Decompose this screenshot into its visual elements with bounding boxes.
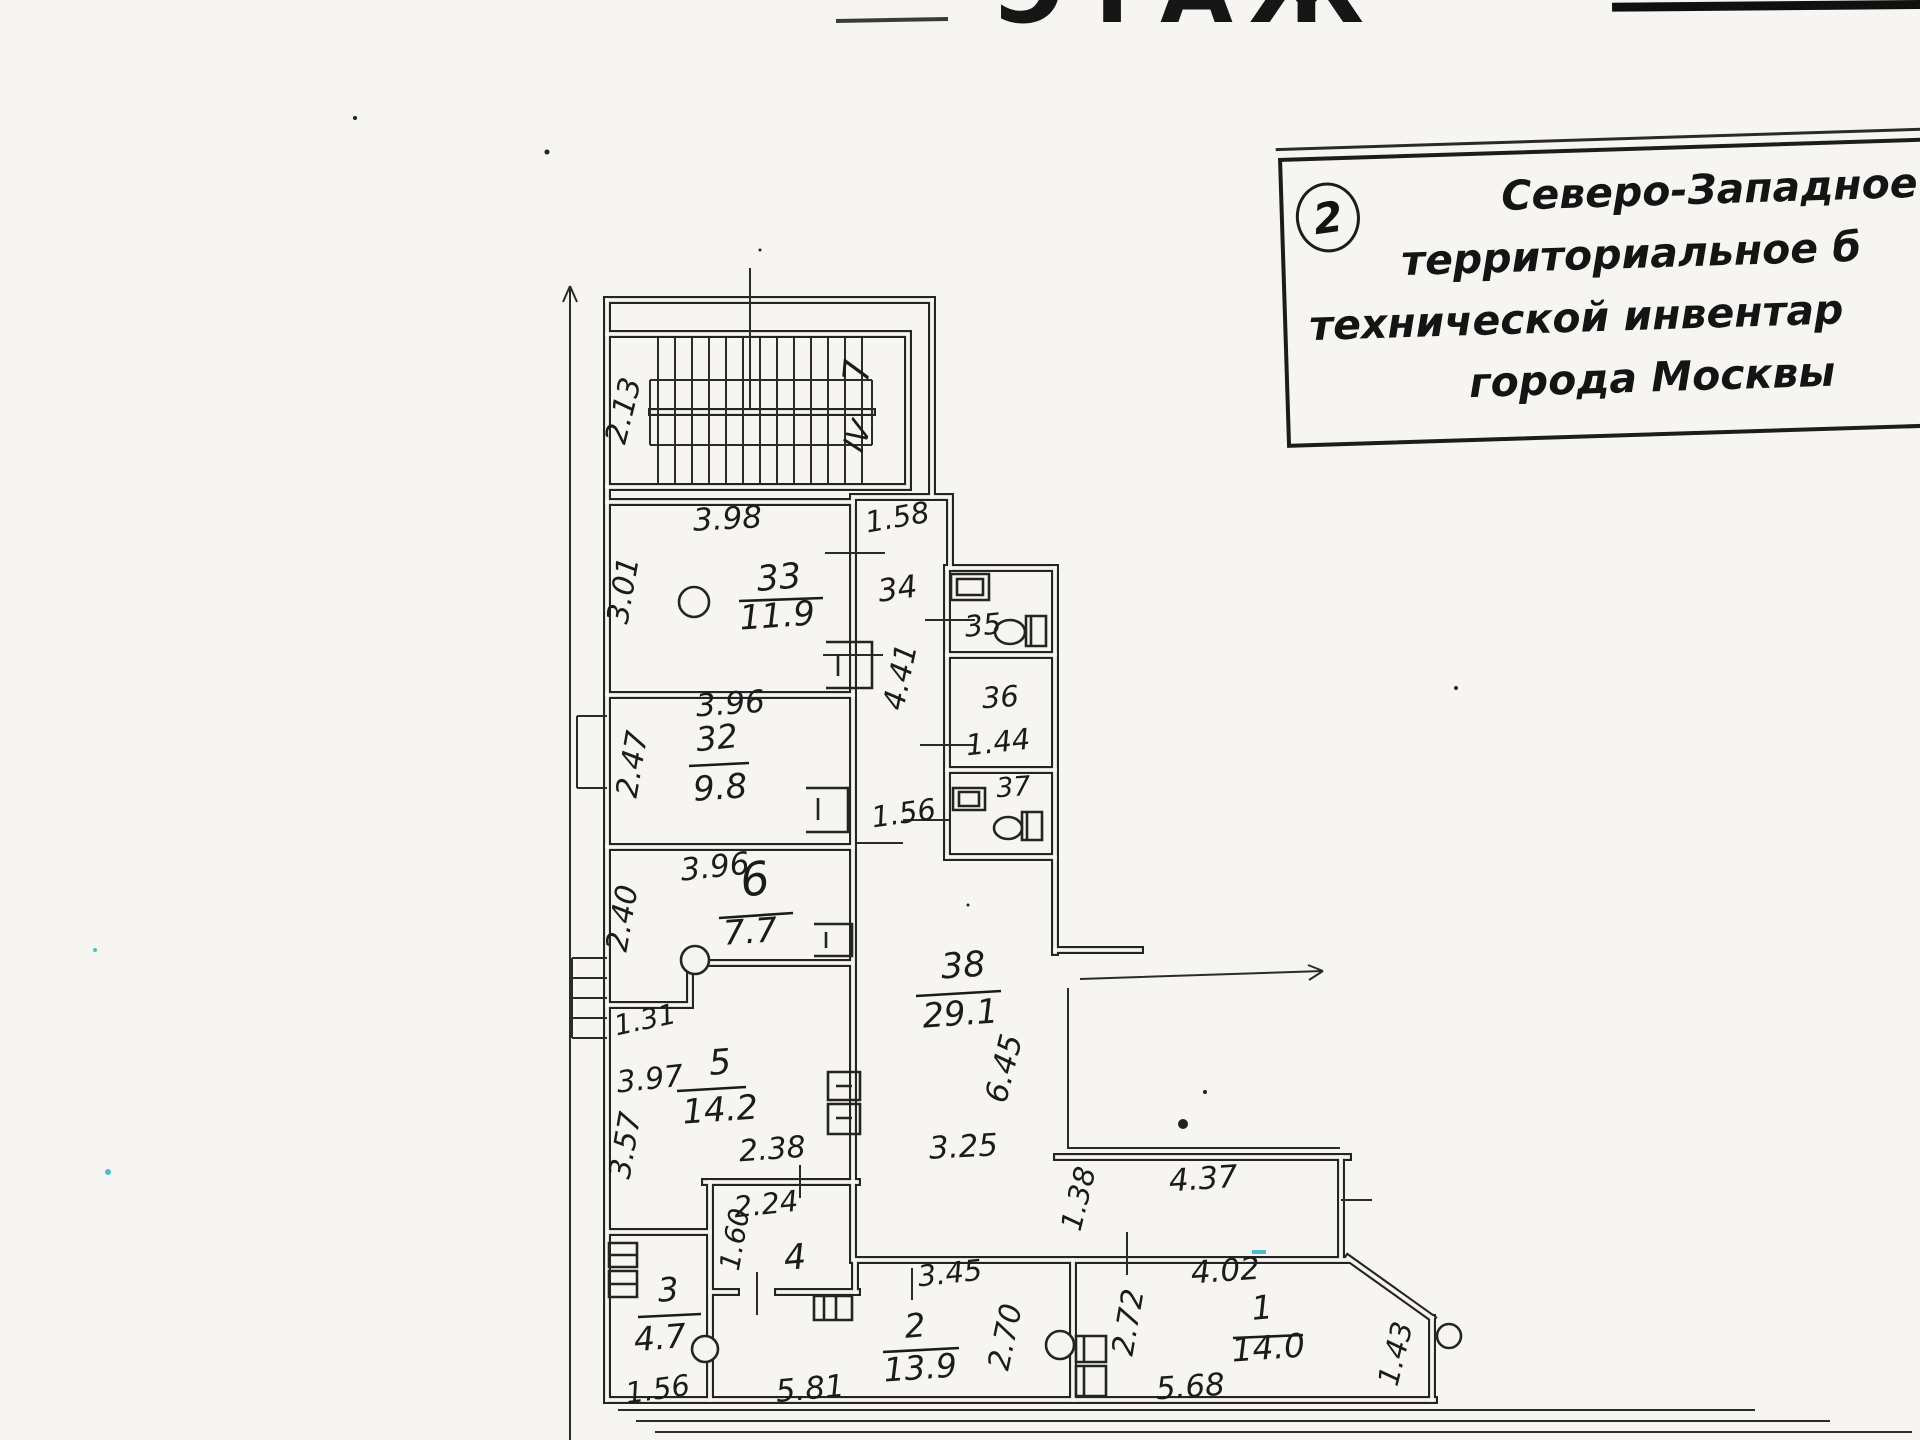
radiator-room1 bbox=[1076, 1336, 1106, 1396]
column-room6 bbox=[681, 946, 709, 974]
toilet-room37 bbox=[994, 817, 1022, 839]
plan-label-room38-number: 38 bbox=[940, 945, 987, 988]
scan-specks bbox=[93, 116, 1458, 1254]
radiator-room2 bbox=[814, 1296, 852, 1320]
door-room6 bbox=[814, 924, 852, 956]
plan-label-room37-number: 37 bbox=[995, 771, 1031, 804]
toilet-tank-room35 bbox=[1026, 616, 1046, 646]
plan-label-room33-top-dim: 3.98 bbox=[692, 499, 763, 539]
plan-label-room2-number: 2 bbox=[903, 1305, 927, 1346]
plan-label-room32-area: 9.8 bbox=[692, 766, 749, 810]
plan-label-room1-bottom-dim: 5.68 bbox=[1155, 1367, 1226, 1408]
facade-lines bbox=[618, 1410, 1912, 1432]
plan-label-room1-area: 14.0 bbox=[1230, 1326, 1306, 1370]
cellar-hatch bbox=[572, 958, 607, 1038]
plan-label-stair-section: IV bbox=[836, 414, 880, 457]
plan-label-room35-number: 35 bbox=[963, 606, 1003, 644]
plan-label-room38-height-dim: 6.45 bbox=[978, 1031, 1030, 1107]
toilet-tank-room37 bbox=[1022, 812, 1042, 840]
plan-label-room3-number: 3 bbox=[656, 1269, 680, 1309]
plan-label-room2-right-dim: 2.70 bbox=[982, 1301, 1030, 1374]
plan-label-room33-area: 11.9 bbox=[738, 593, 816, 638]
plan-label-room2-area: 13.9 bbox=[882, 1346, 958, 1390]
plan-label-room38-area: 29.1 bbox=[921, 991, 999, 1036]
column-room2 bbox=[1046, 1331, 1074, 1359]
plan-label-room36-area: 1.44 bbox=[964, 722, 1032, 763]
plan-label-room32-number: 32 bbox=[694, 716, 740, 759]
left-protrusion bbox=[577, 716, 607, 788]
plan-label-room32-left-dim: 2.47 bbox=[610, 728, 656, 800]
plan-label-room1-right-dim: 1.43 bbox=[1371, 1318, 1420, 1389]
boundary-line bbox=[563, 286, 577, 1440]
plan-label-room1-number: 1 bbox=[1250, 1287, 1274, 1328]
plan-label-room2-top-dim: 3.45 bbox=[916, 1253, 984, 1294]
plan-label-room1-left-dim: 2.72 bbox=[1106, 1286, 1152, 1358]
loggia-outline bbox=[1068, 988, 1340, 1148]
column-room3 bbox=[692, 1336, 718, 1362]
door-room32 bbox=[806, 788, 848, 832]
plan-label-room6-number: 6 bbox=[737, 850, 774, 908]
plan-label-corridor34-length: 4.41 bbox=[877, 641, 925, 714]
plan-label-room4-number: 4 bbox=[782, 1237, 808, 1279]
plan-label-loggia-length-dim: 4.37 bbox=[1168, 1159, 1240, 1200]
plan-label-room38-bottom-dim: 3.25 bbox=[928, 1127, 999, 1167]
plan-label-corridor-door-dim: 1.56 bbox=[869, 792, 938, 835]
plan-label-room5-number: 5 bbox=[707, 1042, 733, 1084]
plan-label-room5-bottom-dim: 2.38 bbox=[738, 1130, 807, 1170]
floor-plan-svg: 2.137IV1.583.983.013311.9344.4135361.443… bbox=[0, 0, 1920, 1440]
sink-room35 bbox=[951, 574, 989, 600]
plan-label-room1-top-dim: 4.02 bbox=[1190, 1251, 1261, 1292]
scanned-floor-plan-page: { "header": { "title_partial": "ЭТАЖ" },… bbox=[0, 0, 1920, 1440]
column-southeast bbox=[1437, 1324, 1461, 1348]
plan-label-vestibule-dim: 1.58 bbox=[863, 495, 933, 540]
fraction-line-room32-number bbox=[689, 763, 749, 766]
plan-label-room6-area: 7.7 bbox=[722, 910, 779, 954]
plan-label-loggia-depth-dim: 1.38 bbox=[1054, 1163, 1103, 1234]
plan-label-room5-upper-dim: 3.97 bbox=[615, 1059, 685, 1101]
plan-label-room4-left-dim: 1.60 bbox=[713, 1206, 756, 1273]
radiator-room3 bbox=[609, 1243, 637, 1297]
sink-room37 bbox=[953, 788, 985, 810]
plan-label-room5-area: 14.2 bbox=[681, 1087, 759, 1132]
plan-label-room2-bottom-dim: 5.81 bbox=[774, 1368, 846, 1410]
door-swing-arrow bbox=[1080, 965, 1323, 980]
column-room33 bbox=[679, 587, 709, 617]
plan-label-room3-bottom-dim: 1.56 bbox=[623, 1368, 692, 1411]
plan-label-room36-number: 36 bbox=[981, 679, 1020, 715]
plan-label-room33-number: 33 bbox=[755, 556, 803, 600]
plan-label-room3-area: 4.7 bbox=[632, 1316, 688, 1359]
plan-labels-layer: 2.137IV1.583.983.013311.9344.4135361.443… bbox=[599, 358, 1420, 1411]
plan-label-stair-number: 7 bbox=[836, 358, 879, 384]
plan-label-corridor34-number: 34 bbox=[876, 569, 920, 610]
